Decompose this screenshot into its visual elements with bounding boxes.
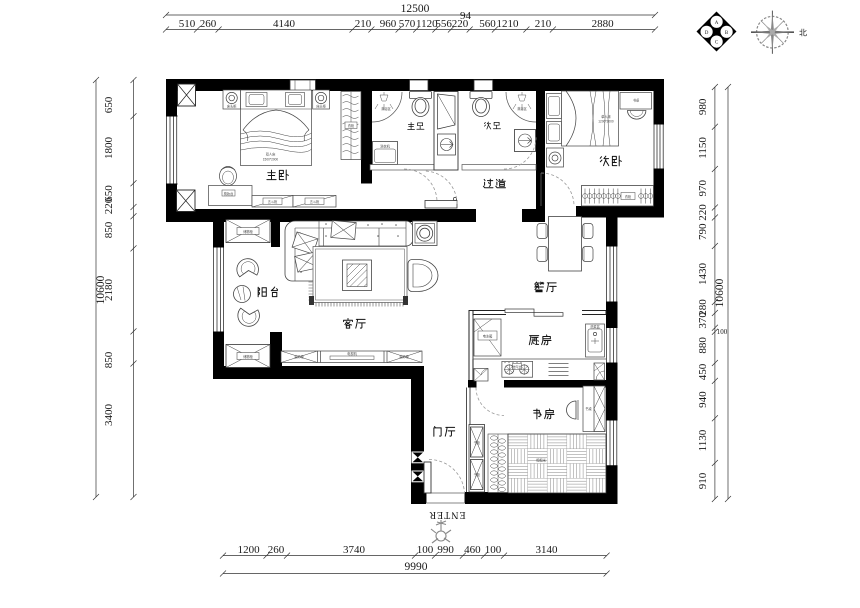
svg-text:储物柜: 储物柜: [243, 354, 253, 359]
svg-text:1200: 1200: [238, 544, 261, 556]
svg-text:榻榻米: 榻榻米: [536, 458, 546, 463]
svg-text:衣柜: 衣柜: [625, 194, 632, 199]
svg-text:10600: 10600: [714, 278, 726, 307]
svg-text:3400: 3400: [103, 404, 115, 427]
svg-text:220: 220: [452, 18, 469, 30]
svg-text:1800: 1800: [103, 137, 115, 160]
svg-text:9990: 9990: [405, 561, 428, 573]
svg-text:淋浴区: 淋浴区: [517, 106, 527, 111]
svg-text:100: 100: [485, 544, 502, 556]
svg-text:1500*2000: 1500*2000: [263, 158, 279, 162]
svg-text:1130: 1130: [697, 429, 709, 451]
svg-text:960: 960: [380, 18, 397, 30]
svg-text:510: 510: [179, 18, 196, 30]
svg-text:A: A: [715, 21, 719, 26]
svg-text:560: 560: [479, 18, 496, 30]
svg-text:书柜: 书柜: [474, 440, 481, 445]
svg-text:850: 850: [103, 351, 115, 368]
svg-text:370: 370: [697, 312, 709, 329]
svg-text:梳妆台: 梳妆台: [224, 191, 234, 196]
svg-text:3740: 3740: [343, 544, 366, 556]
svg-text:双人床: 双人床: [266, 152, 276, 157]
svg-text:3140: 3140: [536, 544, 559, 556]
svg-text:单人床: 单人床: [601, 114, 611, 119]
svg-text:1200*2000: 1200*2000: [598, 120, 614, 124]
svg-text:990: 990: [437, 544, 454, 556]
svg-text:装饰柜: 装饰柜: [399, 354, 409, 359]
svg-text:220: 220: [697, 204, 709, 221]
svg-text:850: 850: [103, 221, 115, 238]
svg-text:570: 570: [399, 18, 416, 30]
svg-text:床头柜: 床头柜: [316, 104, 326, 109]
svg-text:10600: 10600: [95, 275, 107, 304]
svg-text:北: 北: [799, 29, 807, 38]
svg-text:4140: 4140: [273, 18, 296, 30]
svg-text:储物柜: 储物柜: [243, 229, 253, 234]
svg-text:940: 940: [697, 391, 709, 408]
svg-text:淋浴区: 淋浴区: [381, 106, 391, 111]
svg-text:556: 556: [435, 18, 452, 30]
svg-text:100: 100: [717, 328, 728, 336]
svg-text:910: 910: [697, 472, 709, 489]
svg-text:书桌: 书桌: [585, 406, 592, 411]
svg-text:ENTER: ENTER: [428, 509, 465, 520]
svg-text:970: 970: [697, 180, 709, 197]
svg-text:210: 210: [355, 18, 372, 30]
svg-text:650: 650: [103, 96, 115, 113]
svg-text:书桌: 书桌: [633, 98, 640, 103]
svg-text:12500: 12500: [401, 3, 430, 15]
svg-text:880: 880: [697, 337, 709, 354]
svg-text:1150: 1150: [697, 137, 709, 159]
svg-text:D: D: [705, 31, 709, 36]
svg-text:980: 980: [697, 98, 709, 115]
svg-text:五斗柜: 五斗柜: [268, 199, 278, 204]
svg-text:260: 260: [200, 18, 217, 30]
svg-text:电冰箱: 电冰箱: [483, 334, 493, 339]
svg-text:五斗柜: 五斗柜: [310, 199, 320, 204]
svg-text:450: 450: [697, 363, 709, 380]
svg-text:100: 100: [417, 544, 434, 556]
svg-text:210: 210: [535, 18, 552, 30]
svg-text:燃气灶: 燃气灶: [512, 364, 522, 369]
svg-text:1210: 1210: [497, 18, 520, 30]
svg-text:衣柜: 衣柜: [348, 123, 355, 128]
svg-text:220: 220: [103, 197, 115, 214]
svg-text:装饰柜: 装饰柜: [294, 354, 304, 359]
svg-text:790: 790: [697, 223, 709, 240]
svg-text:260: 260: [268, 544, 285, 556]
svg-text:洗菜盆: 洗菜盆: [590, 324, 600, 329]
svg-text:460: 460: [464, 544, 481, 556]
svg-text:洗衣机: 洗衣机: [380, 144, 390, 149]
svg-text:书柜: 书柜: [474, 472, 481, 477]
svg-text:电视机: 电视机: [347, 351, 357, 356]
svg-text:床头柜: 床头柜: [227, 104, 237, 109]
svg-text:2880: 2880: [592, 18, 615, 30]
svg-text:1430: 1430: [697, 263, 709, 286]
